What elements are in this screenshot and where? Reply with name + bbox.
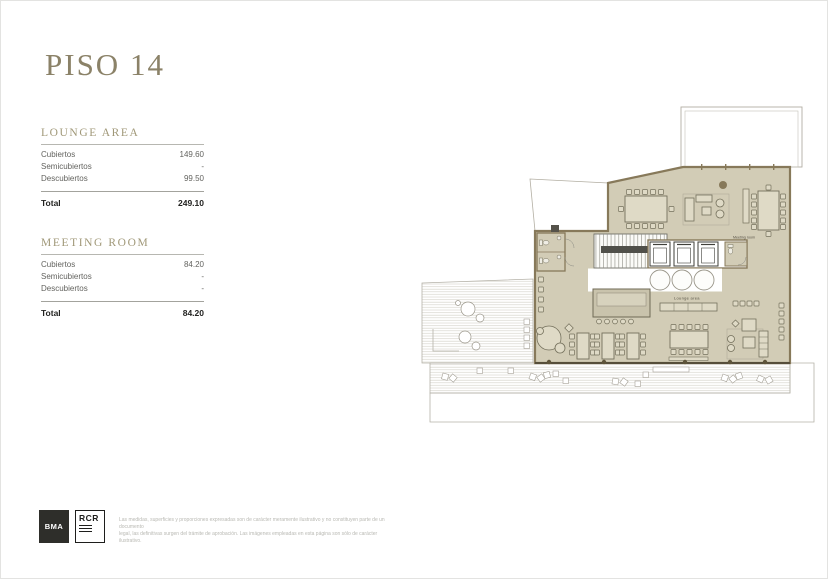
console-shelf xyxy=(743,189,749,223)
rcr-logo-sublines xyxy=(79,525,104,532)
table-row: Semicubiertos - xyxy=(41,161,204,173)
total-row: Total 84.20 xyxy=(41,308,204,318)
round-column xyxy=(719,181,727,189)
table-row: Cubiertos 84.20 xyxy=(41,259,204,271)
brochure-page: PISO 14 LOUNGE AREA Cubiertos 149.60 Sem… xyxy=(0,0,828,579)
row-value: - xyxy=(201,271,204,283)
row-label: Semicubiertos xyxy=(41,271,92,283)
divider xyxy=(41,301,204,302)
deck-bottom xyxy=(430,363,790,393)
section-title-meeting: MEETING ROOM xyxy=(41,237,204,255)
table-row: Descubiertos - xyxy=(41,283,204,295)
row-value: - xyxy=(201,161,204,173)
row-label: Semicubiertos xyxy=(41,161,92,173)
footer: BMA RCR Las medidas, superficies y propo… xyxy=(39,510,394,545)
row-value: 84.20 xyxy=(184,259,204,271)
row-value: - xyxy=(201,283,204,295)
total-label: Total xyxy=(41,198,61,208)
table-row: Cubiertos 149.60 xyxy=(41,149,204,161)
row-label: Cubiertos xyxy=(41,149,75,161)
rcr-logo: RCR xyxy=(75,510,105,543)
row-label: Descubiertos xyxy=(41,283,88,295)
bma-logo: BMA xyxy=(39,510,69,543)
meeting-room-table: MEETING ROOM Cubiertos 84.20 Semicubiert… xyxy=(41,237,204,318)
deck-left xyxy=(422,279,533,363)
disclaimer-line: legal, las definitivas surgen del trámit… xyxy=(119,531,394,545)
total-label: Total xyxy=(41,308,61,318)
terrace-upper-left xyxy=(530,179,608,231)
lounge-area-label: Lounge area xyxy=(674,296,700,301)
row-label: Cubiertos xyxy=(41,259,75,271)
row-value: 99.50 xyxy=(184,173,204,185)
wc-small xyxy=(725,242,747,266)
rcr-logo-text: RCR xyxy=(79,513,99,523)
disclaimer-line: Las medidas, superficies y proporciones … xyxy=(119,517,394,531)
meeting-room-label: Meeting room xyxy=(733,236,755,240)
divider xyxy=(41,191,204,192)
lounge-area-table: LOUNGE AREA Cubiertos 149.60 Semicubiert… xyxy=(41,127,204,208)
table-row: Semicubiertos - xyxy=(41,271,204,283)
total-value: 249.10 xyxy=(178,198,204,208)
corridor-columns xyxy=(588,269,722,292)
row-label: Descubiertos xyxy=(41,173,88,185)
section-title-lounge: LOUNGE AREA xyxy=(41,127,204,145)
elevators xyxy=(648,240,747,268)
page-title: PISO 14 xyxy=(45,47,165,83)
row-value: 149.60 xyxy=(180,149,204,161)
total-row: Total 249.10 xyxy=(41,198,204,208)
terrace-top-right xyxy=(681,107,802,167)
table-row: Descubiertos 99.50 xyxy=(41,173,204,185)
small-tables xyxy=(570,333,646,359)
lounge-shelf xyxy=(660,303,717,311)
legal-disclaimer: Las medidas, superficies y proporciones … xyxy=(119,517,394,545)
floor-plan: Meeting room Lounge area xyxy=(413,91,825,436)
total-value: 84.20 xyxy=(183,308,204,318)
